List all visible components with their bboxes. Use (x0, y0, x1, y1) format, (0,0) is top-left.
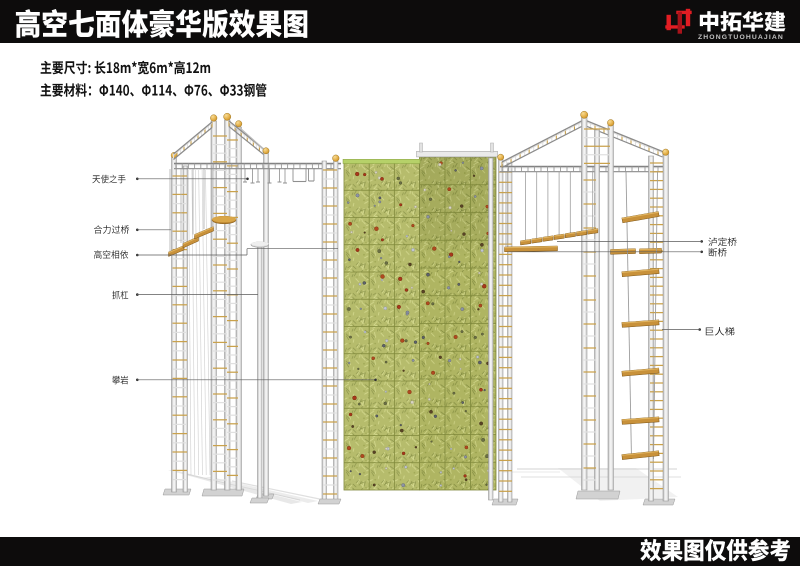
svg-text:ZHONGTUOHUAJIAN: ZHONGTUOHUAJIAN (698, 34, 784, 41)
